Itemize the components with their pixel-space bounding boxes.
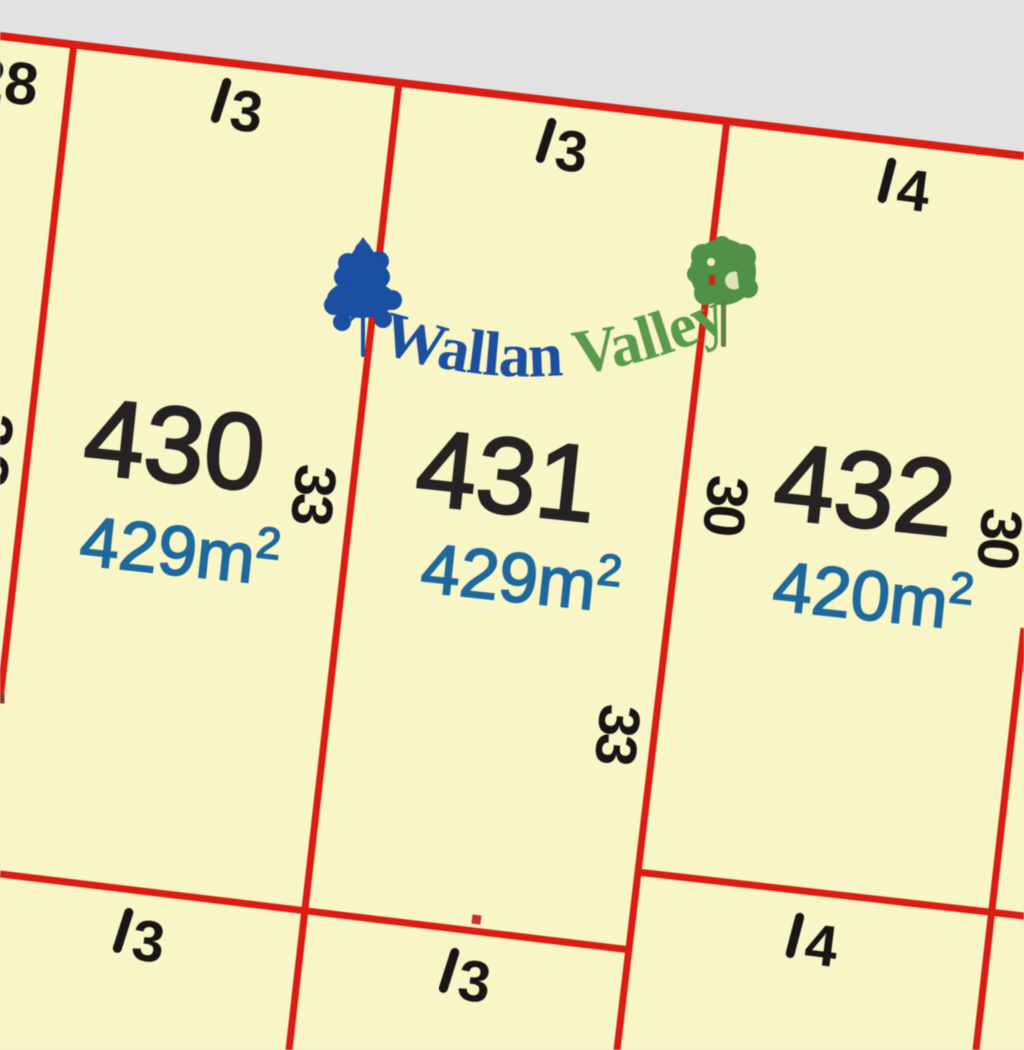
svg-text:33: 33 [582,701,653,768]
svg-text:30: 30 [690,472,761,538]
svg-text:432: 432 [769,420,961,559]
svg-text:33: 33 [278,461,349,528]
svg-text:30: 30 [964,505,1024,571]
svg-text:430: 430 [79,375,271,514]
svg-text:431: 431 [411,406,603,545]
